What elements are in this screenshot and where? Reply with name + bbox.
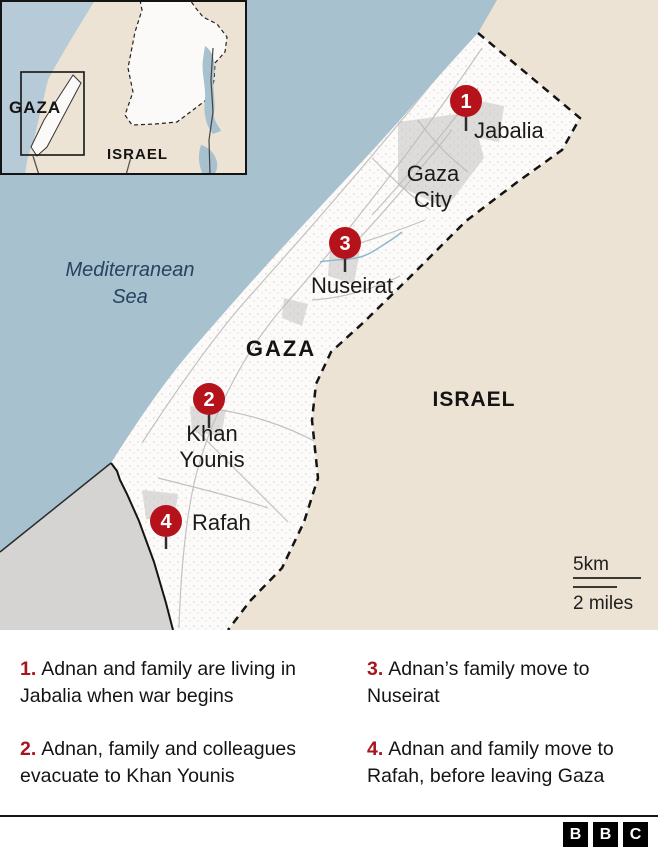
- israel-label: ISRAEL: [432, 388, 515, 411]
- marker-1-number: 1: [460, 91, 471, 113]
- gaza-region-label: GAZA: [246, 336, 316, 361]
- marker-2-number: 2: [203, 389, 214, 411]
- legend: 1.Adnan and family are living in Jabalia…: [0, 630, 658, 790]
- khan-younis-label-line2: Younis: [179, 447, 244, 472]
- infographic: Mediterranean Sea GAZA ISRAEL Jabalia Ga…: [0, 0, 658, 859]
- map-svg: Mediterranean Sea GAZA ISRAEL Jabalia Ga…: [0, 0, 658, 630]
- scale-km-label: 5km: [573, 554, 609, 575]
- jabalia-label: Jabalia: [474, 118, 544, 143]
- gaza-city-label-line2: City: [414, 187, 452, 212]
- footer-divider: [0, 815, 658, 817]
- legend-item-1: 1.Adnan and family are living in Jabalia…: [20, 656, 350, 710]
- legend-item-3: 3.Adnan’s family move to Nuseirat: [367, 656, 638, 710]
- legend-text-2: Adnan, family and colleagues evacuate to…: [20, 738, 296, 787]
- nuseirat-label: Nuseirat: [311, 273, 393, 298]
- marker-3-number: 3: [339, 233, 350, 255]
- legend-text-4: Adnan and family move to Rafah, before l…: [367, 738, 614, 787]
- legend-number-3: 3.: [367, 658, 383, 680]
- legend-number-2: 2.: [20, 738, 36, 760]
- gaza-city-label-line1: Gaza: [407, 161, 460, 186]
- bbc-logo: B B C: [563, 822, 648, 847]
- rafah-label: Rafah: [192, 510, 251, 535]
- legend-text-1: Adnan and family are living in Jabalia w…: [20, 658, 296, 707]
- mediterranean-label-line2: Sea: [112, 286, 148, 308]
- inset-map: GAZA ISRAEL: [0, 0, 246, 175]
- legend-item-4: 4.Adnan and family move to Rafah, before…: [367, 736, 638, 790]
- scale-miles-label: 2 miles: [573, 593, 633, 614]
- mediterranean-label-line1: Mediterranean: [66, 259, 195, 281]
- legend-item-2: 2.Adnan, family and colleagues evacuate …: [20, 736, 350, 790]
- bbc-logo-block-2: B: [593, 822, 618, 847]
- inset-israel-label: ISRAEL: [107, 146, 168, 163]
- legend-number-1: 1.: [20, 658, 36, 680]
- legend-number-4: 4.: [367, 738, 383, 760]
- legend-text-3: Adnan’s family move to Nuseirat: [367, 658, 590, 707]
- bbc-logo-block-3: C: [623, 822, 648, 847]
- marker-4-number: 4: [160, 511, 172, 533]
- bbc-logo-block-1: B: [563, 822, 588, 847]
- inset-gaza-label: GAZA: [9, 98, 61, 117]
- khan-younis-label-line1: Khan: [186, 421, 237, 446]
